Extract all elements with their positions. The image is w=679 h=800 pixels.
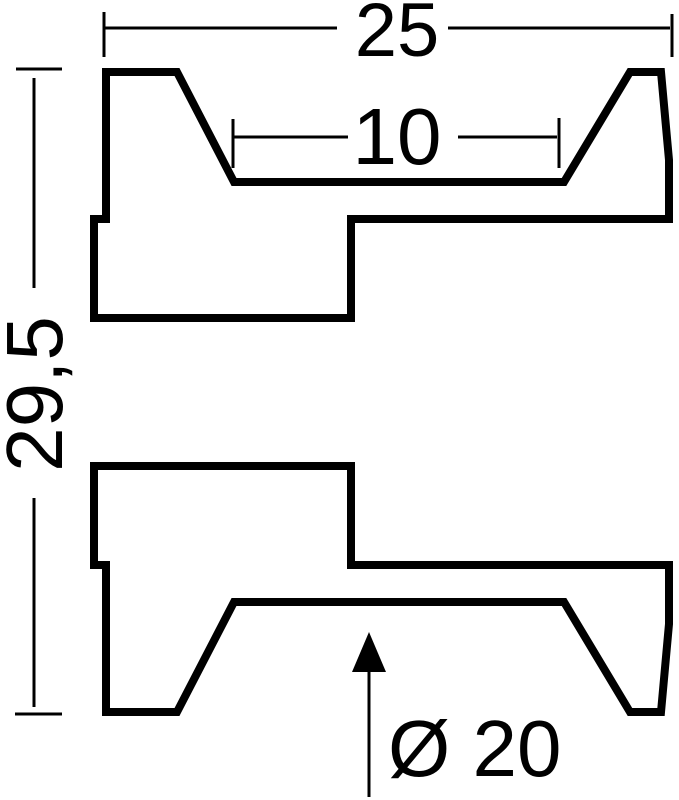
- dim-groove-diameter-label: Ø 20: [388, 704, 561, 793]
- rim-profile-drawing: 25 10 29,5 Ø 20: [0, 0, 679, 800]
- drawing-background: [0, 0, 679, 800]
- dim-groove-width-label: 10: [353, 92, 442, 181]
- dim-total-height-label: 29,5: [0, 316, 79, 472]
- dim-overall-width-label: 25: [355, 0, 440, 73]
- technical-drawing-page: 25 10 29,5 Ø 20: [0, 0, 679, 800]
